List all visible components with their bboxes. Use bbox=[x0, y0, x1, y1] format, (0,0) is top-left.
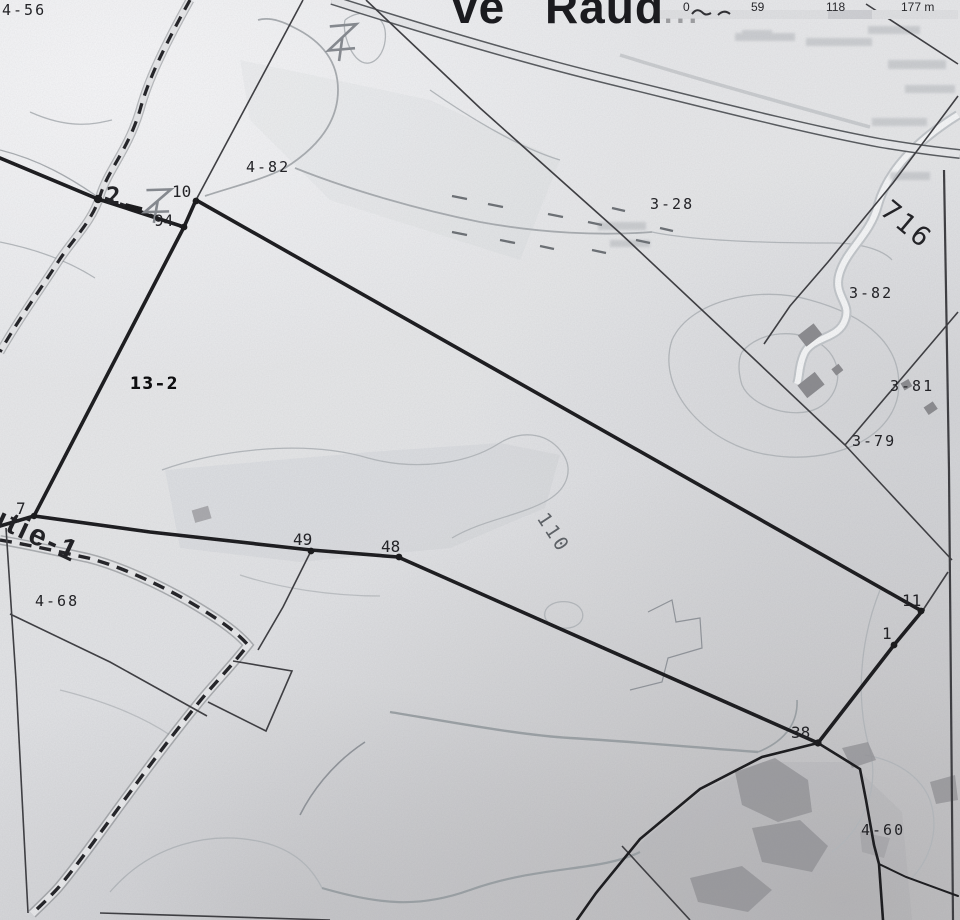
scale-tick-59: 59 bbox=[751, 1, 764, 13]
point-label-94: 94 bbox=[154, 213, 173, 229]
point-label-48: 48 bbox=[381, 539, 400, 555]
parcel-label-4-68: 4-68 bbox=[35, 594, 79, 609]
point-label-38: 38 bbox=[791, 725, 810, 741]
scan-grain-overlay bbox=[0, 0, 960, 920]
scale-tick-177m: 177 m bbox=[901, 1, 934, 13]
parcel-label-4-82: 4-82 bbox=[246, 160, 290, 175]
parcel-label-3-28: 3-28 bbox=[650, 197, 694, 212]
point-label-1: 1 bbox=[882, 626, 892, 642]
parcel-label-4-56: 4-56 bbox=[2, 3, 46, 18]
parcel-label-13-2: 13-2 bbox=[130, 376, 179, 393]
point-label-11: 11 bbox=[902, 593, 921, 609]
map-drawing bbox=[0, 0, 960, 920]
scale-tick-118: 118 bbox=[826, 1, 845, 13]
point-label-2: 2 bbox=[106, 184, 120, 208]
map-sheet-title: ve Raud... bbox=[452, 0, 701, 30]
title-fragment: ve Raud bbox=[452, 0, 664, 33]
parcel-label-3-81: 3-81 bbox=[890, 379, 934, 394]
scanned-cadastral-map: ve Raud... 0 59 118 177 m 4-56 4-82 3-28… bbox=[0, 0, 960, 920]
point-label-49: 49 bbox=[293, 532, 312, 548]
parcel-label-3-79: 3-79 bbox=[852, 434, 896, 449]
point-label-10: 10 bbox=[172, 184, 191, 200]
scale-tick-0: 0 bbox=[683, 1, 690, 13]
parcel-label-4-60: 4-60 bbox=[861, 823, 905, 838]
parcel-label-3-82: 3-82 bbox=[849, 286, 893, 301]
point-label-7: 7 bbox=[16, 501, 26, 517]
